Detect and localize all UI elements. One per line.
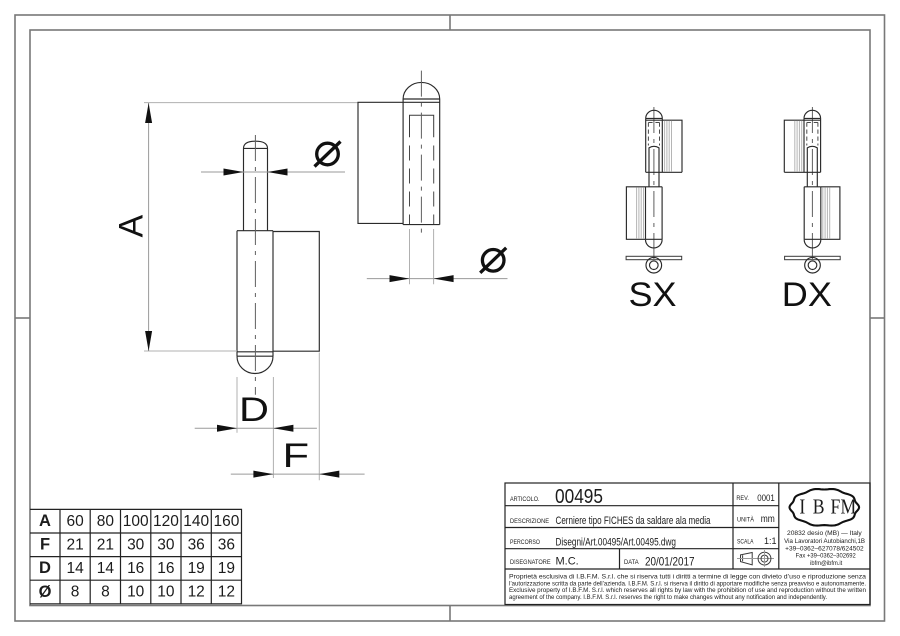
svg-text:120: 120 [153,513,179,530]
svg-text:21: 21 [97,536,114,553]
svg-text:20/01/2017: 20/01/2017 [645,554,695,568]
svg-text:ibfm@ibfm.it: ibfm@ibfm.it [810,560,842,567]
svg-text:160: 160 [213,513,239,530]
svg-text:14: 14 [97,560,115,577]
svg-text:1:1: 1:1 [764,536,777,546]
svg-text:Fax +39–0362–302692: Fax +39–0362–302692 [796,553,856,560]
svg-text:8: 8 [101,584,110,601]
svg-text:Ø: Ø [39,583,52,601]
svg-text:A: A [39,512,51,530]
svg-text:Cerniere tipo FICHES da saldar: Cerniere tipo FICHES da saldare ala medi… [556,515,712,527]
svg-text:ARTICOLO.: ARTICOLO. [510,496,540,503]
svg-text:16: 16 [127,560,144,577]
svg-text:00495: 00495 [555,485,603,508]
svg-text:30: 30 [127,536,145,553]
svg-text:36: 36 [188,536,205,553]
svg-text:Disegni/Art.00495/Art.00495.dw: Disegni/Art.00495/Art.00495.dwg [556,536,677,548]
svg-text:140: 140 [183,513,209,530]
svg-text:B: B [813,495,825,519]
svg-text:REV.: REV. [736,495,749,502]
svg-text:36: 36 [218,536,235,553]
svg-text:D: D [39,559,51,577]
svg-text:agreement of the company. I.B.: agreement of the company. I.B.F.M. S.r.l… [509,594,827,601]
svg-text:DESCRIZIONE: DESCRIZIONE [510,518,550,525]
svg-text:PERCORSO: PERCORSO [510,539,540,546]
svg-text:20832 desio (MB) — Italy: 20832 desio (MB) — Italy [787,530,862,537]
svg-text:8: 8 [71,584,80,601]
svg-text:mm: mm [761,514,775,525]
svg-text:M.C.: M.C. [556,556,579,568]
svg-text:D: D [239,391,269,429]
svg-text:0001: 0001 [757,493,775,504]
svg-text:+39–0362–627078/624502: +39–0362–627078/624502 [785,545,864,552]
svg-text:M: M [841,495,857,519]
svg-text:I: I [799,495,805,519]
svg-text:DISEGNATORE: DISEGNATORE [510,559,551,566]
svg-text:F: F [283,437,310,474]
svg-text:12: 12 [188,584,205,601]
svg-text:30: 30 [157,536,175,553]
svg-text:10: 10 [157,584,175,601]
svg-text:19: 19 [218,560,235,577]
svg-text:A: A [113,215,151,238]
svg-text:F: F [831,495,841,519]
svg-text:60: 60 [66,513,84,530]
svg-text:100: 100 [123,513,149,530]
svg-text:UNITÀ: UNITÀ [737,515,755,524]
svg-text:19: 19 [188,560,205,577]
svg-text:10: 10 [127,584,145,601]
svg-text:F: F [40,536,50,554]
svg-text:12: 12 [218,584,235,601]
svg-text:SX: SX [629,276,677,314]
svg-text:80: 80 [97,513,115,530]
svg-text:DATA: DATA [624,559,639,566]
svg-text:14: 14 [66,560,84,577]
svg-text:DX: DX [782,276,832,314]
svg-text:21: 21 [66,536,83,553]
svg-text:Via Lavoratori Autobianchi,1B: Via Lavoratori Autobianchi,1B [784,538,865,545]
svg-text:16: 16 [157,560,174,577]
svg-text:SCALA: SCALA [737,538,754,545]
